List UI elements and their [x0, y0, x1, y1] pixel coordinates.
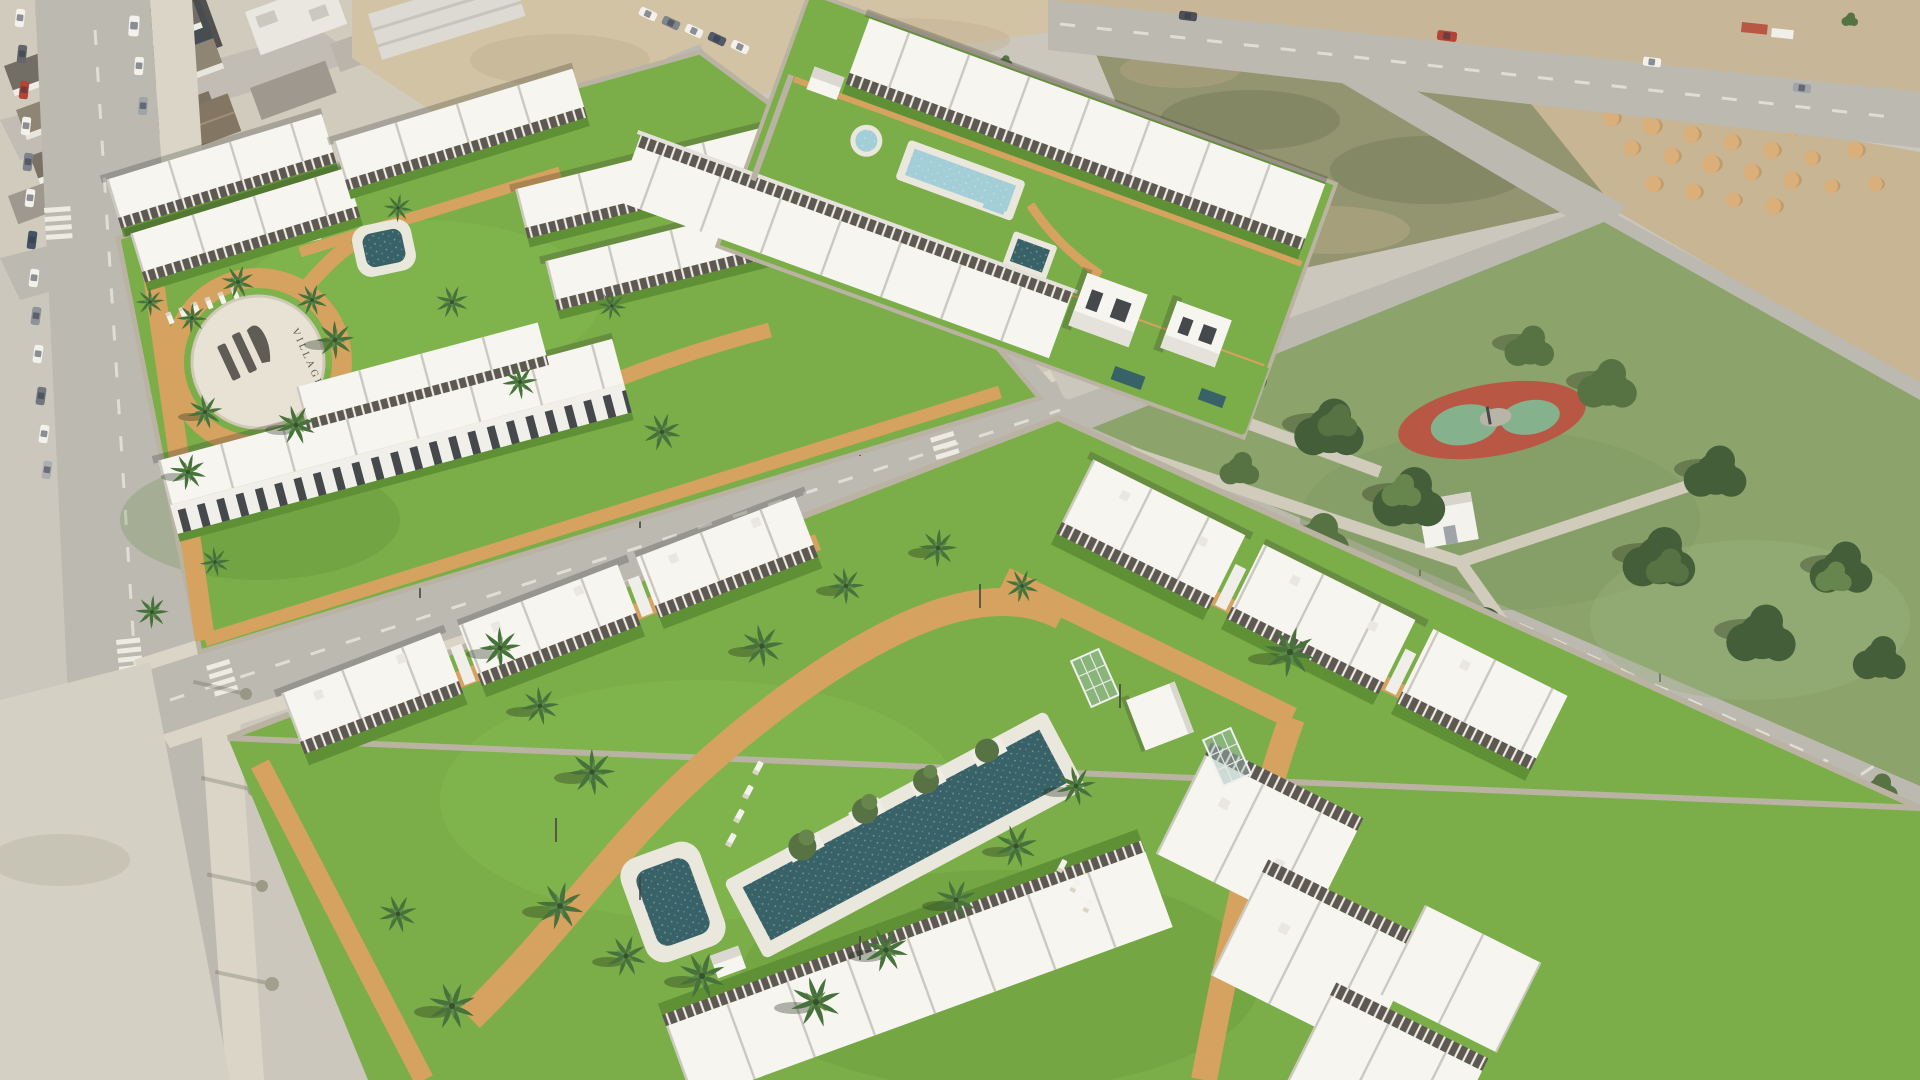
- light-wash: [0, 0, 1920, 1080]
- aerial-render-image: VILLAGE: [0, 0, 1920, 1080]
